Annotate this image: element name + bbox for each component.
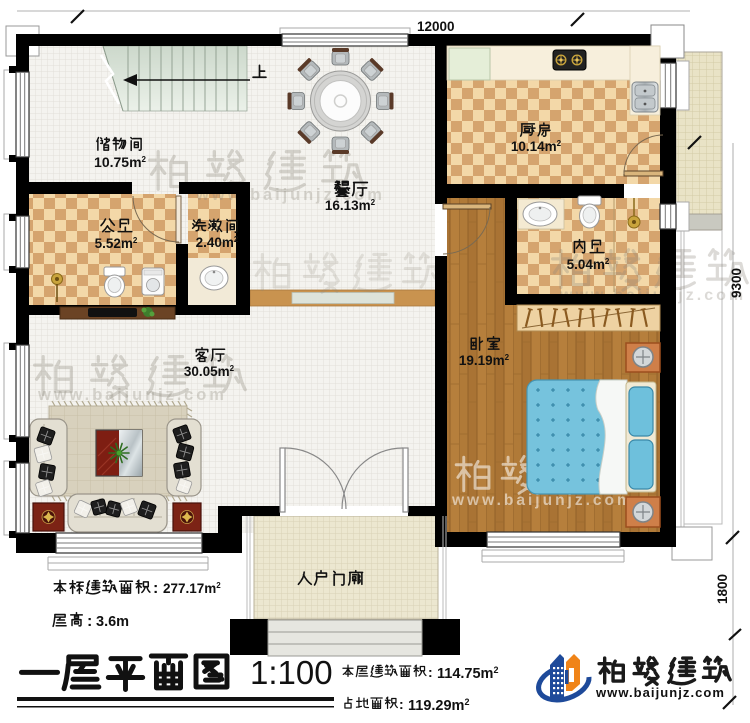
svg-text::: : <box>399 696 404 712</box>
svg-text:2.40m2: 2.40m2 <box>196 235 239 250</box>
svg-text:277.17m2: 277.17m2 <box>163 581 221 596</box>
svg-text:10.14m2: 10.14m2 <box>511 139 562 154</box>
svg-text:30.05m2: 30.05m2 <box>184 364 235 379</box>
svg-text:114.75m2: 114.75m2 <box>437 665 498 682</box>
svg-text:10.75m2: 10.75m2 <box>94 154 146 170</box>
svg-text::: : <box>87 613 92 630</box>
svg-text:9300: 9300 <box>729 268 744 298</box>
svg-text:19.19m2: 19.19m2 <box>459 353 510 368</box>
svg-text::: : <box>153 580 158 597</box>
svg-text:3.6m: 3.6m <box>96 614 129 630</box>
svg-text:5.52m2: 5.52m2 <box>95 236 138 251</box>
svg-text:1:100: 1:100 <box>250 654 333 691</box>
svg-text:5.04m2: 5.04m2 <box>567 257 610 272</box>
svg-text::: : <box>428 664 433 680</box>
svg-text:119.29m2: 119.29m2 <box>408 697 469 714</box>
svg-text:16.13m2: 16.13m2 <box>325 198 376 213</box>
svg-text:www.baijunjz.com: www.baijunjz.com <box>595 685 725 700</box>
svg-text:www.baijunjz.com: www.baijunjz.com <box>37 386 227 404</box>
svg-text:12000: 12000 <box>417 19 455 34</box>
svg-text:1800: 1800 <box>715 574 730 604</box>
